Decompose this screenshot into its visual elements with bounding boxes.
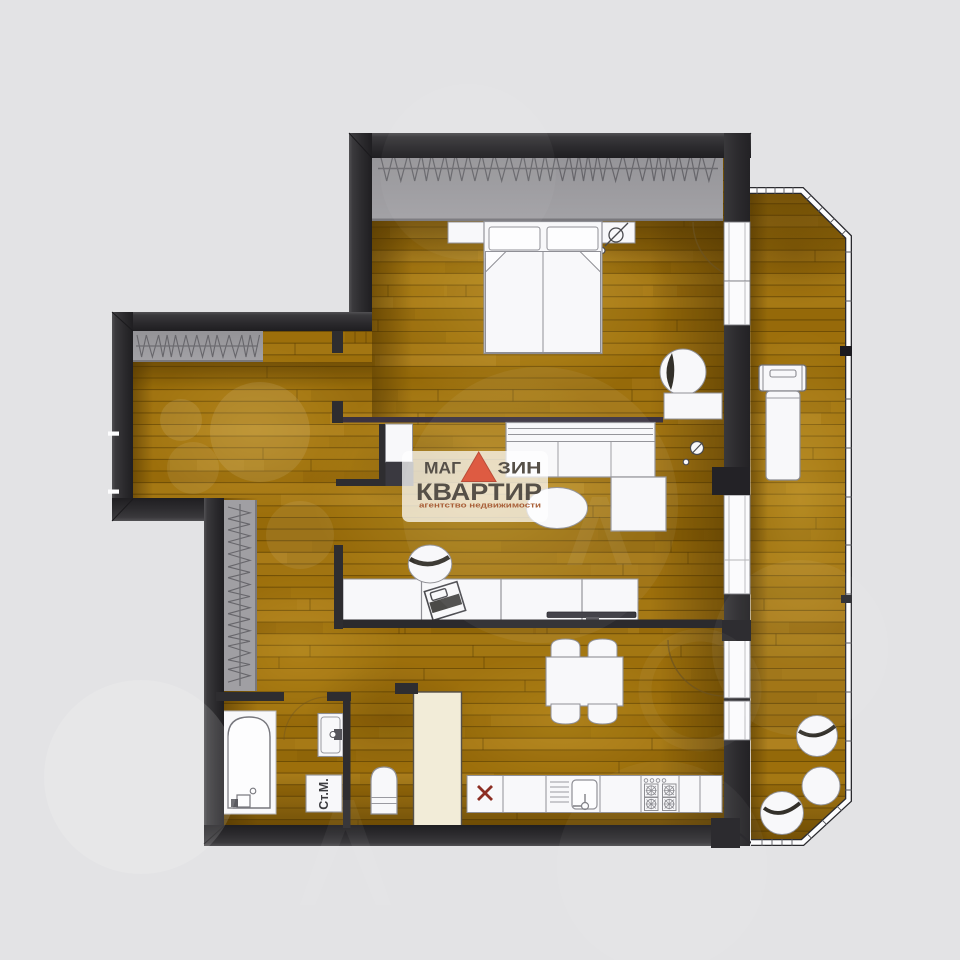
- svg-text:Ст.М.: Ст.М.: [317, 778, 331, 809]
